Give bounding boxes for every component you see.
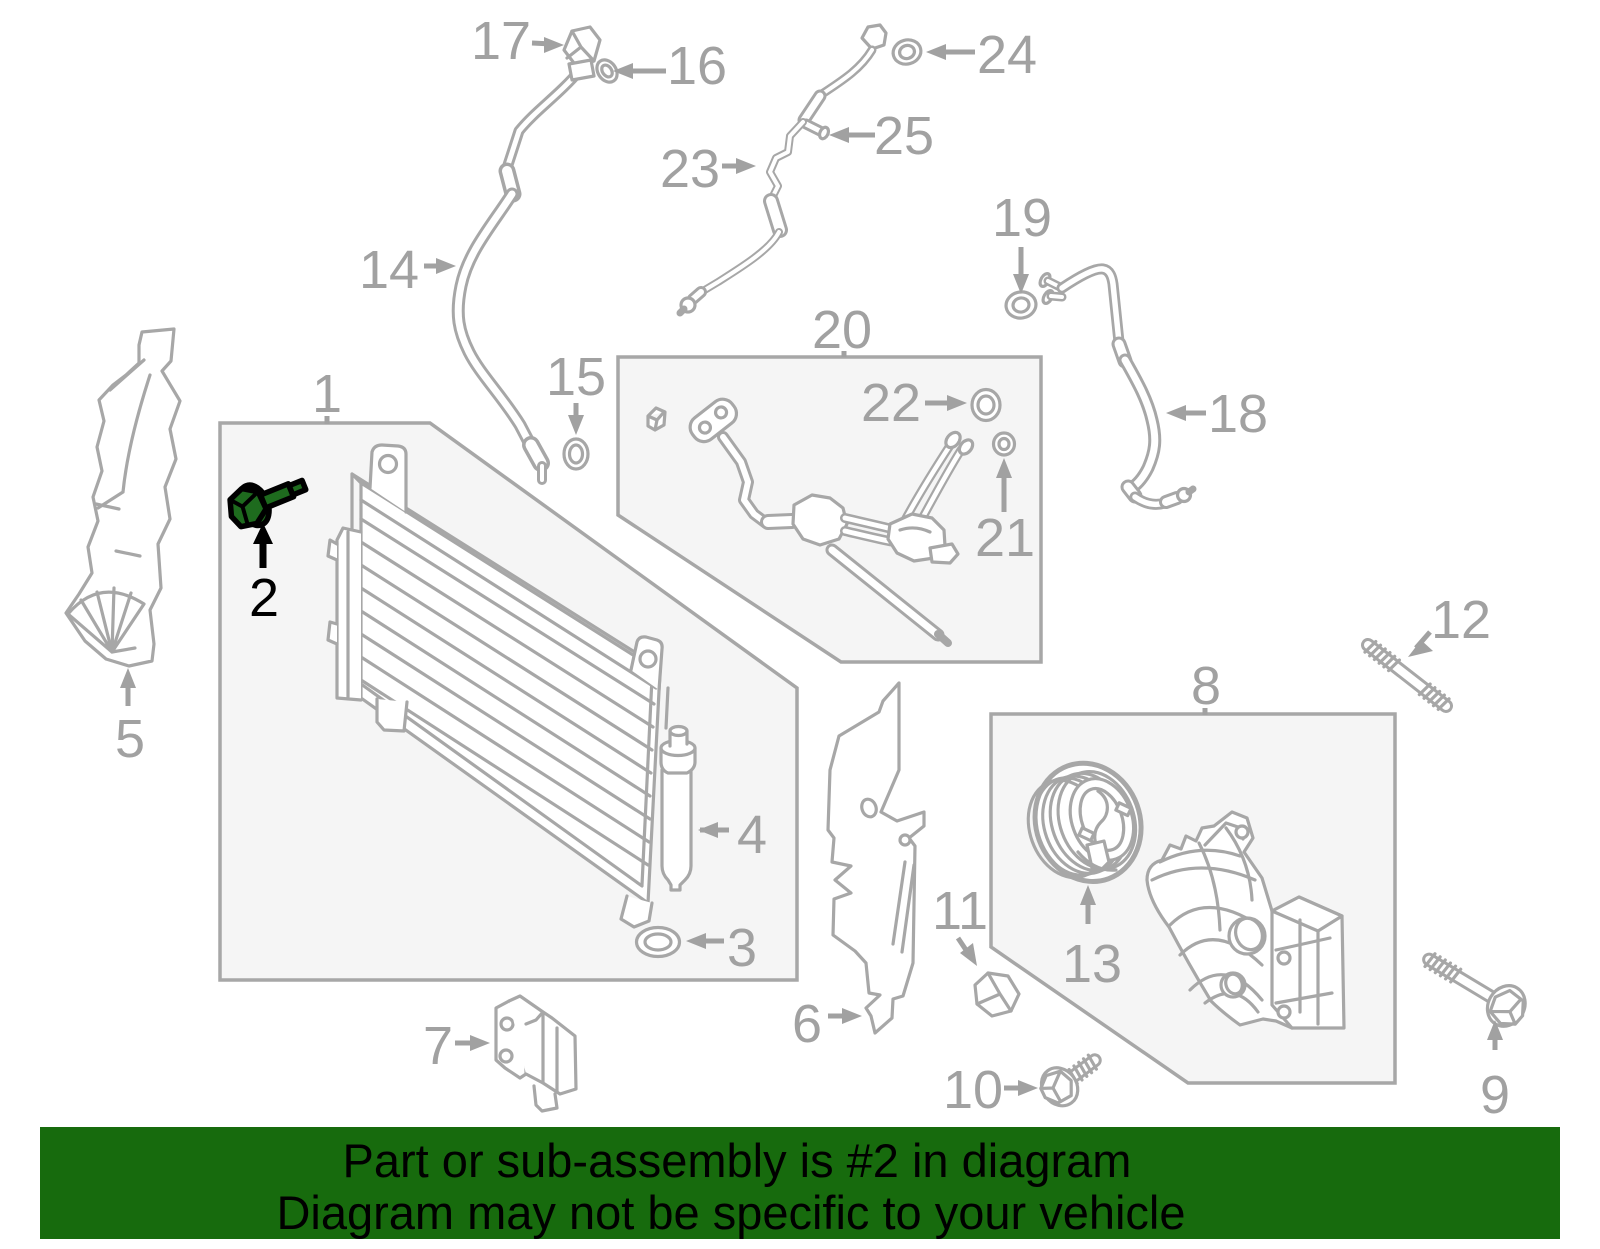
svg-text:15: 15	[546, 347, 606, 407]
svg-text:13: 13	[1062, 934, 1122, 994]
svg-text:5: 5	[115, 709, 145, 769]
svg-text:7: 7	[423, 1016, 453, 1076]
svg-text:9: 9	[1480, 1065, 1510, 1125]
svg-text:4: 4	[737, 805, 767, 865]
svg-text:6: 6	[792, 994, 822, 1054]
svg-text:23: 23	[660, 139, 720, 199]
svg-text:22: 22	[861, 373, 921, 433]
svg-text:19: 19	[992, 188, 1052, 248]
svg-text:18: 18	[1208, 384, 1268, 444]
svg-text:12: 12	[1431, 590, 1491, 650]
svg-text:8: 8	[1191, 656, 1221, 716]
svg-text:Part or sub-assembly is #2 in: Part or sub-assembly is #2 in diagram	[343, 1134, 1132, 1187]
svg-text:17: 17	[471, 11, 531, 71]
svg-text:2: 2	[249, 568, 279, 628]
svg-text:24: 24	[977, 25, 1037, 85]
svg-text:16: 16	[667, 36, 727, 96]
svg-text:11: 11	[932, 881, 988, 941]
svg-text:21: 21	[975, 508, 1035, 568]
svg-text:Diagram may not be specific to: Diagram may not be specific to your vehi…	[276, 1186, 1185, 1239]
svg-text:25: 25	[874, 106, 934, 166]
svg-text:10: 10	[943, 1060, 1003, 1120]
svg-text:1: 1	[312, 364, 342, 424]
svg-text:14: 14	[359, 240, 419, 300]
svg-text:3: 3	[727, 918, 757, 978]
